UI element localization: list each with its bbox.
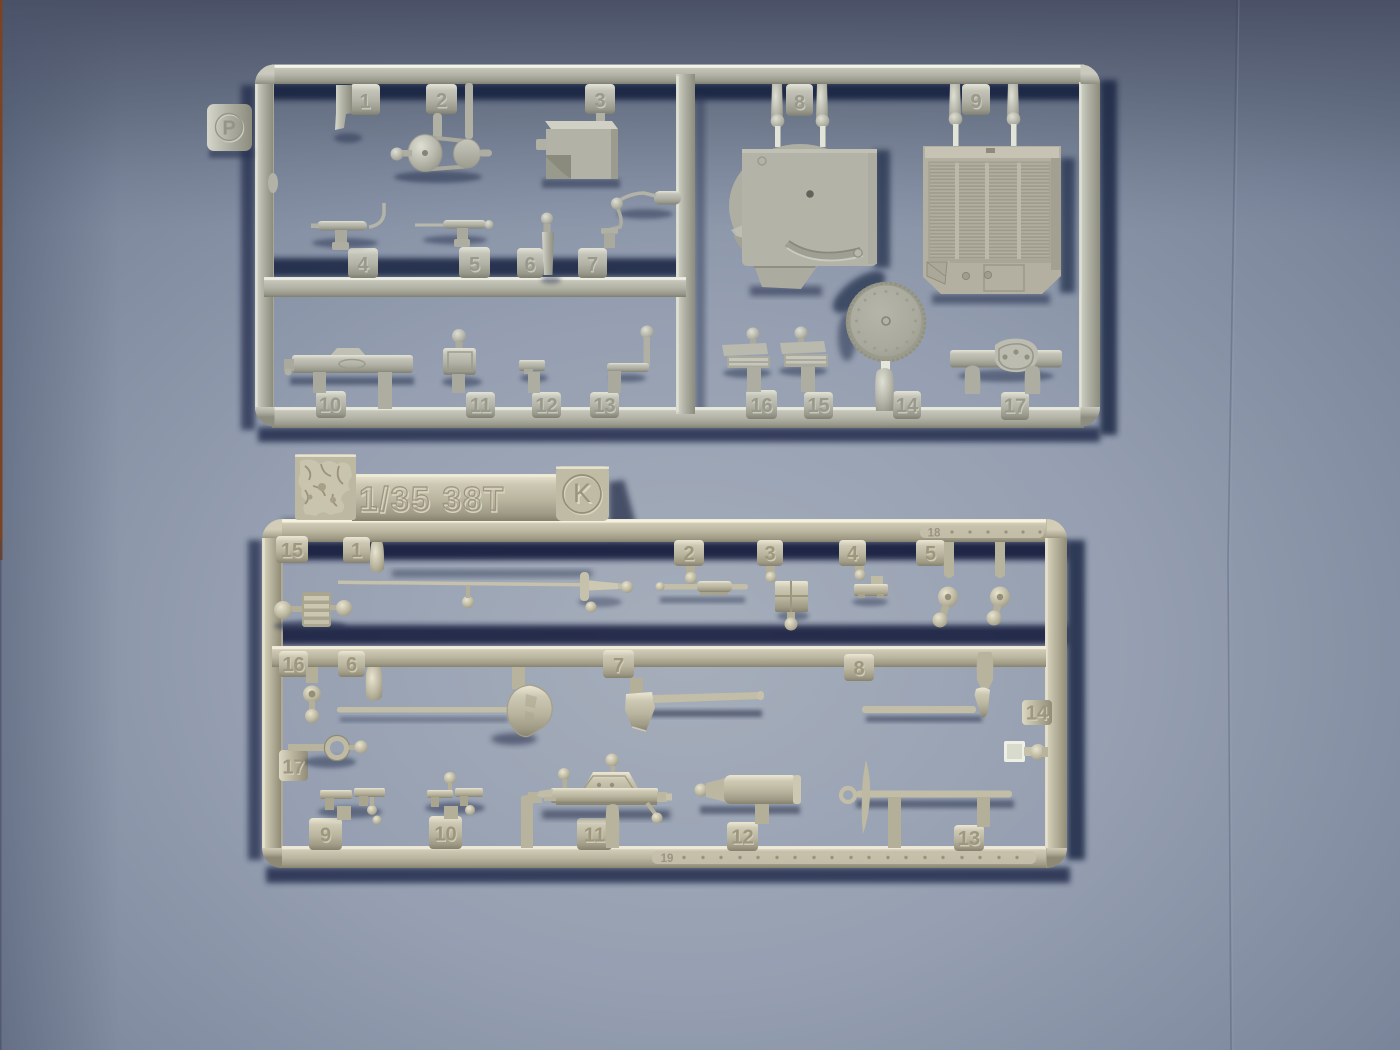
svg-text:11: 11	[584, 825, 605, 847]
svg-text:16: 16	[282, 654, 304, 676]
svg-text:8: 8	[794, 92, 805, 114]
svg-text:K: K	[573, 478, 591, 508]
svg-text:2: 2	[436, 90, 447, 112]
svg-text:18: 18	[928, 528, 941, 540]
svg-text:15: 15	[807, 395, 829, 417]
svg-text:9: 9	[970, 91, 981, 113]
svg-text:P: P	[222, 118, 235, 140]
svg-text:3: 3	[764, 543, 775, 565]
svg-text:5: 5	[925, 543, 936, 565]
svg-text:6: 6	[346, 654, 357, 676]
svg-text:4: 4	[847, 543, 859, 565]
svg-text:17: 17	[282, 757, 304, 779]
svg-text:2: 2	[683, 543, 694, 565]
svg-text:16: 16	[750, 395, 772, 417]
svg-text:9: 9	[320, 825, 331, 847]
svg-text:6: 6	[524, 254, 535, 276]
svg-text:8: 8	[853, 658, 864, 680]
svg-text:12: 12	[731, 827, 753, 849]
svg-text:11: 11	[470, 395, 491, 417]
svg-text:10: 10	[434, 824, 456, 846]
svg-text:14: 14	[1026, 703, 1049, 725]
svg-text:13: 13	[593, 395, 615, 417]
svg-text:1: 1	[351, 540, 362, 562]
svg-text:13: 13	[958, 828, 980, 850]
svg-text:14: 14	[896, 395, 919, 417]
svg-text:1/35 38T: 1/35 38T	[359, 480, 505, 517]
svg-text:1: 1	[359, 91, 370, 113]
svg-text:10: 10	[319, 395, 341, 417]
svg-text:19: 19	[661, 853, 674, 865]
svg-text:7: 7	[613, 655, 624, 677]
svg-text:7: 7	[587, 254, 598, 276]
svg-text:5: 5	[469, 254, 480, 276]
svg-text:15: 15	[281, 540, 303, 562]
svg-text:4: 4	[357, 254, 369, 276]
svg-text:17: 17	[1004, 396, 1026, 418]
svg-text:3: 3	[594, 90, 605, 112]
svg-text:12: 12	[535, 395, 557, 417]
